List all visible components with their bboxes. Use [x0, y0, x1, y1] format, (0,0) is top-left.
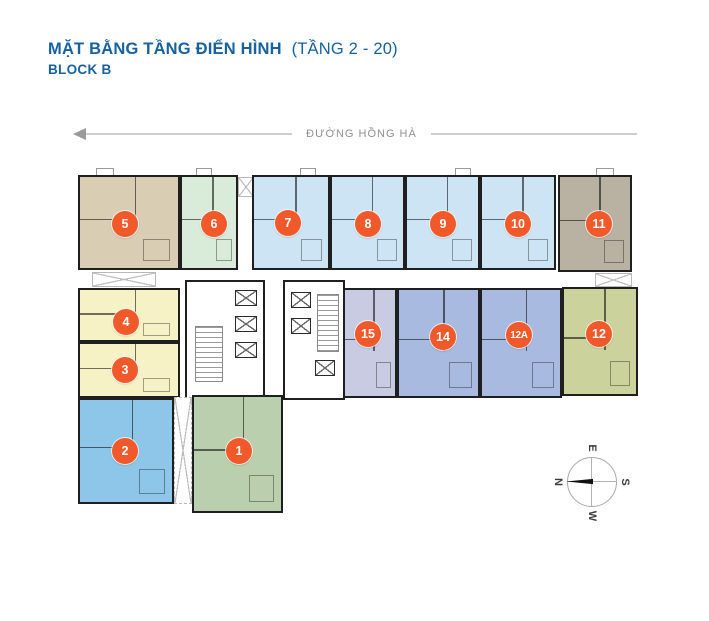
compass-label-east: E	[585, 441, 599, 455]
street-name: ĐƯỜNG HỒNG HÀ	[306, 128, 417, 140]
unit-badge-2: 2	[112, 438, 138, 464]
elevator	[291, 292, 311, 308]
room-outline	[376, 362, 391, 387]
core-left	[185, 280, 265, 400]
block-subtitle: BLOCK B	[48, 62, 112, 77]
unit-badge-12a: 12A	[506, 322, 532, 348]
room-outline	[301, 239, 322, 261]
room-outline	[452, 239, 472, 261]
unit-badge-11: 11	[586, 211, 612, 237]
street-arrow-left-icon	[73, 128, 86, 140]
unit-badge-15: 15	[355, 321, 381, 347]
room-outline	[604, 240, 624, 262]
room-outline	[449, 362, 472, 387]
unit-badge-10: 10	[505, 211, 531, 237]
room-outline	[139, 469, 165, 493]
floor-plan-page: MẶT BẰNG TẦNG ĐIỂN HÌNH (TẦNG 2 - 20) BL…	[0, 0, 709, 621]
elevator	[315, 360, 335, 376]
unit-badge-12: 12	[586, 321, 612, 347]
unit-badge-6: 6	[201, 211, 227, 237]
page-title: MẶT BẰNG TẦNG ĐIỂN HÌNH (TẦNG 2 - 20)	[48, 40, 398, 59]
room-outline	[143, 239, 170, 261]
room-outline	[216, 239, 232, 261]
compass-label-north: N	[551, 475, 565, 489]
stairs	[195, 326, 223, 382]
unit-badge-8: 8	[355, 211, 381, 237]
street-label-row: ĐƯỜNG HỒNG HÀ	[73, 126, 637, 142]
unit-badge-4: 4	[113, 309, 139, 335]
unit-badge-5: 5	[112, 211, 138, 237]
room-outline	[143, 323, 170, 336]
page-title-main: MẶT BẰNG TẦNG ĐIỂN HÌNH	[48, 40, 282, 58]
elevator	[235, 290, 257, 306]
void-hatch	[92, 272, 156, 287]
unit-badge-9: 9	[430, 211, 456, 237]
elevator	[291, 318, 311, 334]
room-outline	[610, 361, 631, 386]
street-line-right	[431, 133, 637, 135]
unit-badge-1: 1	[226, 438, 252, 464]
room-outline	[143, 378, 170, 391]
room-outline	[249, 475, 274, 502]
stairs	[317, 294, 339, 352]
core-right	[283, 280, 345, 400]
unit-badge-14: 14	[430, 324, 456, 350]
room-outline	[532, 362, 554, 387]
room-outline	[528, 239, 549, 261]
elevator	[235, 316, 257, 332]
compass-label-south: S	[618, 475, 632, 489]
unit-badge-7: 7	[275, 210, 301, 236]
void-hatch	[595, 273, 632, 287]
elevator	[235, 342, 257, 358]
void-hatch	[174, 397, 192, 504]
room-outline	[377, 239, 397, 261]
page-title-paren: (TẦNG 2 - 20)	[292, 40, 398, 58]
unit-badge-3: 3	[112, 357, 138, 383]
compass-label-west: W	[585, 509, 599, 523]
street-line-left	[86, 133, 292, 135]
